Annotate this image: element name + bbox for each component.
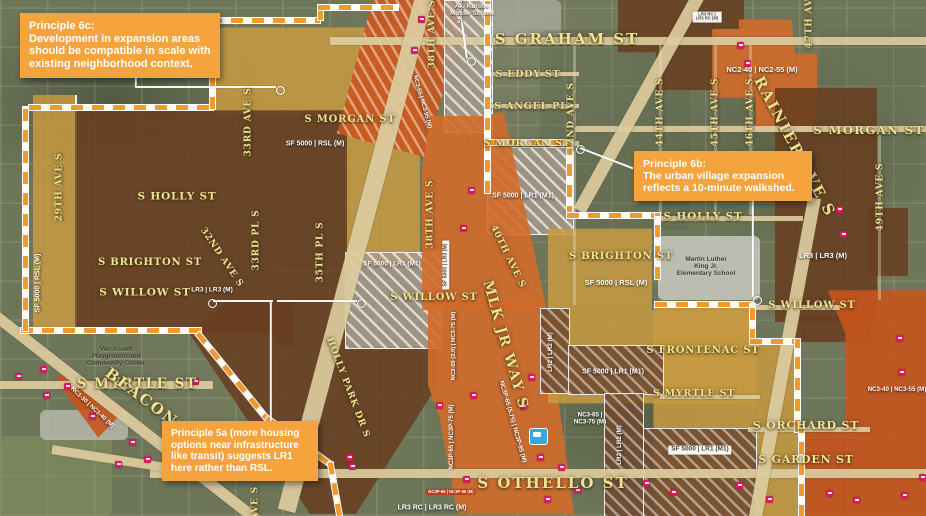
- street-label-brighton-r: S BRIGHTON ST: [569, 252, 673, 263]
- zone-label-z1: SF 5000 | RSL (M): [286, 140, 345, 147]
- transit-stop-icon: [349, 463, 356, 470]
- callout-connector-endpoint: [276, 86, 285, 95]
- transit-stop-icon: [736, 482, 743, 489]
- zone-label-z12: NC3-65 | NC3-75 (M): [574, 413, 606, 426]
- street-label-morgan-r: S MORGAN ST: [813, 124, 924, 136]
- transit-stop-icon: [901, 492, 908, 499]
- callout-connector-endpoint: [576, 145, 585, 154]
- street-label-willow-l: S WILLOW ST: [99, 287, 191, 298]
- place-label-mlk-school: Martin Luther King Jr. Elementary School: [677, 257, 736, 277]
- callout-connector-line: [136, 86, 276, 88]
- zone-label-z16: LR2 | LR2 (M): [617, 425, 624, 465]
- zone-label-z13: NC3-40 | NC3-55 (M): [868, 387, 926, 394]
- zone-label-z11: SF 5000 | LR1 (M1): [668, 446, 731, 455]
- transit-stop-icon: [558, 464, 565, 471]
- transit-stop-icon: [919, 474, 926, 481]
- transit-stop-icon: [840, 231, 847, 238]
- transit-stop-icon: [43, 392, 50, 399]
- transit-stop-icon: [898, 369, 905, 376]
- avenue-label-29th: 29TH AVE S: [55, 153, 64, 222]
- street-label-willow-r: S WILLOW ST: [768, 301, 856, 312]
- zone-label-z17: SF 5000 | LR3 (M): [442, 241, 449, 290]
- zoning-map[interactable]: Principle 6c: Development in expansion a…: [0, 0, 926, 516]
- callout-principle-6b: Principle 6b: The urban village expansio…: [634, 151, 812, 201]
- zone-label-z8: SF 5000 | LR1 (M1): [492, 192, 554, 199]
- place-label-aki: Aki Kurose Middle School: [450, 4, 494, 18]
- callout-title: Principle 6c:: [29, 20, 211, 33]
- zone-lr2-e: [604, 393, 644, 516]
- street-label-graham: S GRAHAM ST: [495, 32, 640, 48]
- callout-principle-6c: Principle 6c: Development in expansion a…: [20, 13, 220, 78]
- avenue-label-35th: 35TH PL S: [316, 222, 325, 283]
- callout-connector-endpoint: [753, 296, 762, 305]
- transit-stop-icon: [436, 402, 443, 409]
- callout-title: Principle 6b:: [643, 158, 803, 170]
- street-label-morgan-l: S MORGAN ST: [304, 115, 395, 126]
- street-label-angel: S ANGEL PL: [494, 102, 567, 112]
- zone-label-z15: LR2 | LR2 (M): [548, 332, 555, 372]
- callout-body: The urban village expansion reflects a 1…: [643, 170, 803, 194]
- callout-body: Development in expansion areas should be…: [29, 33, 211, 71]
- transit-stop-icon: [853, 497, 860, 504]
- urban-village-boundary: [749, 303, 756, 342]
- zone-label-z2: SF 5000 | RSL (M): [34, 254, 41, 313]
- avenue-label-38th-s: 38TH AVE S: [426, 180, 435, 249]
- urban-village-boundary: [28, 104, 214, 111]
- street-label-holly-l: S HOLLY ST: [138, 191, 217, 202]
- transit-stop-icon: [411, 47, 418, 54]
- avenue-label-33rd-ave: 33RD AVE S: [244, 88, 253, 157]
- transit-stop-icon: [346, 454, 353, 461]
- avenue-label-38th-n: 38TH AVE S: [428, 0, 437, 68]
- zone-label-z4: LR3 | LR3 (M): [799, 252, 847, 260]
- place-label-van-asselt: Van Asselt Playground and Community Cent…: [87, 347, 145, 367]
- transit-stop-icon: [737, 42, 744, 49]
- street-label-othello: S OTHELLO ST: [477, 476, 628, 492]
- urban-village-boundary: [798, 428, 805, 516]
- transit-stop-icon: [463, 476, 470, 483]
- zone-label-z19: NC3-65 (2.0) | NC3-75 (M): [451, 312, 457, 381]
- zone-label-z20: NC3P-65 | NC3P-75 (M): [449, 404, 455, 469]
- transit-stop-icon: [826, 490, 833, 497]
- street-label-garden: S GARDEN ST: [758, 454, 854, 466]
- urban-village-boundary: [654, 301, 754, 308]
- street-label-holly-r: S HOLLY ST: [664, 211, 743, 222]
- urban-village-boundary: [566, 212, 658, 219]
- avenue-label-46th: 46TH AVE S: [746, 78, 755, 147]
- avenue-label-ave-x: AVE S: [251, 486, 260, 516]
- avenue-label-44th: 44TH AVE S: [656, 78, 665, 147]
- transit-stop-icon: [544, 496, 551, 503]
- street-label-frontenac: S FRONTENAC ST: [646, 346, 759, 357]
- callout-principle-5a: Principle 5a (more housing options near …: [162, 421, 318, 481]
- callout-connector-line: [752, 198, 754, 297]
- avenue-label-33rd-pl: 33RD PL S: [252, 210, 261, 271]
- transit-stop-icon: [40, 366, 47, 373]
- transit-stop-icon: [470, 392, 477, 399]
- avenue-label-49th: 49TH AVE S: [876, 163, 885, 232]
- callout-connector-endpoint: [357, 299, 366, 308]
- zone-label-z3: LR3 | LR3 (M): [191, 288, 233, 295]
- callout-connector-endpoint: [208, 299, 217, 308]
- street-label-orchard: S ORCHARD ST: [753, 420, 859, 432]
- street-label-morgan-c: S MORGAN ST: [483, 139, 570, 149]
- avenue-label-42nd: 42ND AVE S: [567, 82, 576, 152]
- zone-label-z7: SF 5000 | LR1 (M1): [363, 262, 420, 269]
- street-label-myrtle-r: S MYRTLE ST: [653, 389, 735, 399]
- transit-stop-icon: [537, 454, 544, 461]
- avenue-label-47th: 47TH AVE S: [805, 0, 814, 48]
- urban-village-boundary: [654, 212, 661, 280]
- transit-stop-icon: [896, 335, 903, 342]
- transit-stop-icon: [670, 489, 677, 496]
- zone-label-z23: NC3P-65 | NC3P-95 (M): [426, 489, 475, 495]
- zone-label-z10: SF 5000 | LR1 (M1): [582, 368, 644, 375]
- transit-stop-icon: [766, 496, 773, 503]
- zone-label-z24: LR3 RC | LR3 RC (M): [398, 504, 467, 511]
- transit-stop-icon: [144, 456, 151, 463]
- urban-village-boundary: [22, 106, 29, 332]
- light-rail-station-icon: [529, 428, 548, 445]
- avenue-label-45th: 45TH AVE S: [711, 78, 720, 147]
- street-label-eddy: S EDDY ST: [495, 70, 560, 80]
- transit-stop-icon: [643, 480, 650, 487]
- zone-label-z9: SF 5000 | RSL (M): [585, 279, 648, 287]
- callout-connector-line: [270, 302, 272, 424]
- callout-connector-line: [213, 300, 273, 302]
- callout-body: Principle 5a (more housing options near …: [171, 428, 309, 474]
- transit-stop-icon: [460, 225, 467, 232]
- street-label-brighton-l: S BRIGHTON ST: [98, 258, 202, 269]
- zone-label-z5: NC2-40 | NC2-55 (M): [726, 66, 797, 74]
- zone-lr3-rainier-b: [868, 208, 908, 276]
- transit-stop-icon: [129, 439, 136, 446]
- transit-stop-icon: [468, 187, 475, 194]
- transit-stop-icon: [528, 374, 535, 381]
- transit-stop-icon: [115, 461, 122, 468]
- transit-stop-icon: [418, 16, 425, 23]
- transit-stop-icon: [15, 373, 22, 380]
- urban-village-boundary: [317, 4, 399, 11]
- urban-village-boundary: [209, 17, 321, 24]
- urban-village-boundary: [20, 327, 202, 334]
- zone-label-z6: LR3 RC | LR3 RC (M): [693, 12, 722, 23]
- zone-lr2-w: [540, 308, 570, 394]
- street-label-willow-c: S WILLOW ST: [390, 293, 478, 304]
- callout-connector-endpoint: [467, 57, 476, 66]
- callout-connector-line: [277, 300, 357, 302]
- urban-village-boundary: [484, 0, 491, 194]
